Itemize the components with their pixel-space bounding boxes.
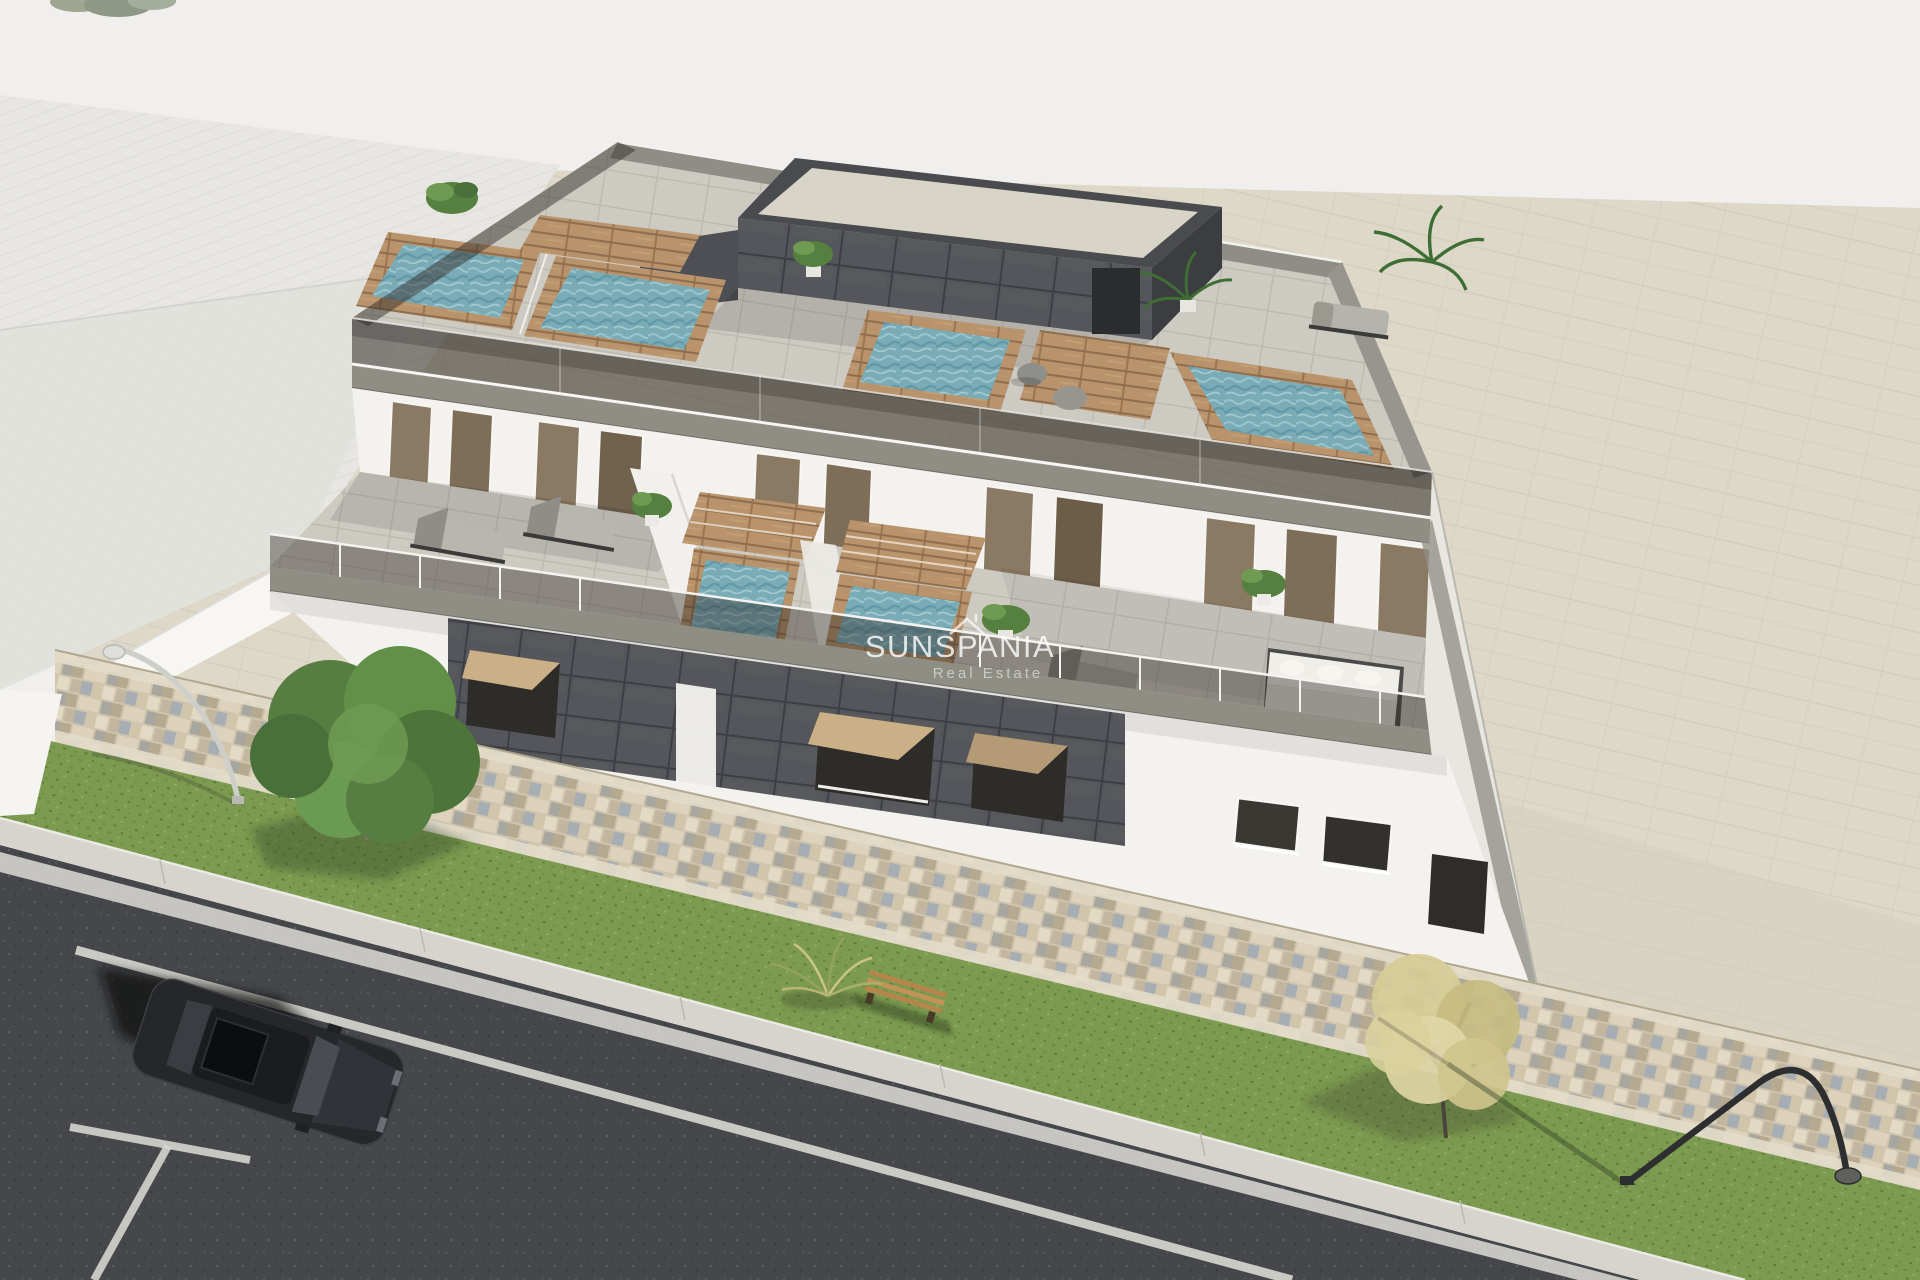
watermark-title: SUNSPANIA — [865, 629, 1055, 664]
ground-door — [1428, 854, 1488, 934]
penthouse-door — [1092, 268, 1140, 334]
green-tree — [250, 646, 480, 880]
lamp-head — [1835, 1168, 1861, 1184]
facade-opening — [462, 650, 560, 738]
watermark-subtitle: Real Estate — [933, 665, 1044, 682]
lamp-head — [103, 645, 125, 659]
facade-opening — [966, 733, 1068, 822]
white-divider — [676, 683, 716, 797]
architectural-render: SUNSPANIA Real Estate — [0, 0, 1920, 1280]
